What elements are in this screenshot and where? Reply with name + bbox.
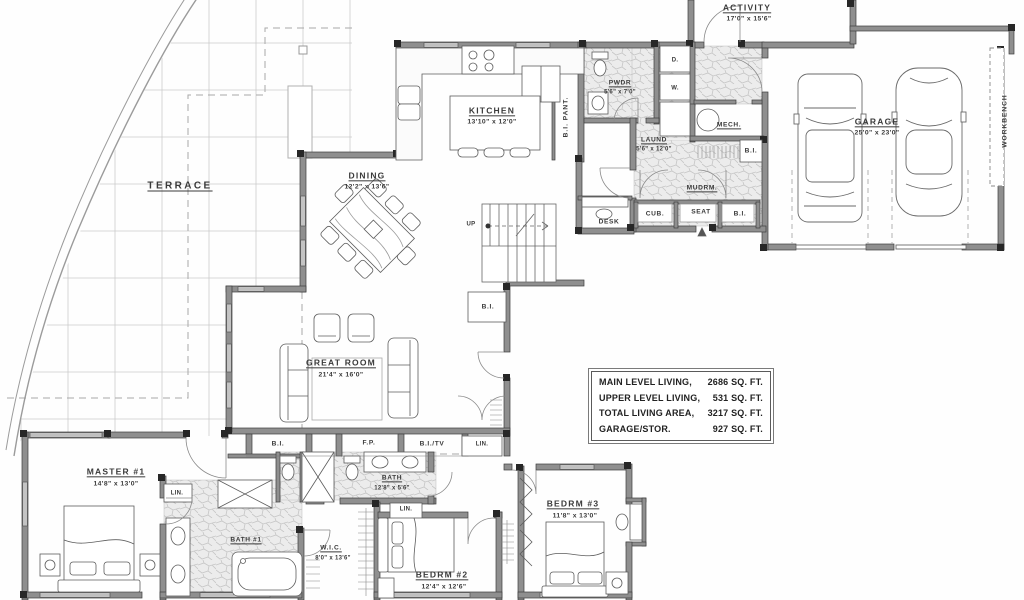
room-dims-kitchen: 13'10" x 12'0" bbox=[467, 118, 516, 125]
feature-label-builtin-seat: B.I. bbox=[734, 210, 747, 217]
stats-label: UPPER LEVEL LIVING, bbox=[599, 391, 700, 407]
room-dims-wic: 8'0" x 13'6" bbox=[315, 556, 351, 563]
stats-value: 531 SQ. FT. bbox=[713, 391, 763, 407]
stats-row-total-living: TOTAL LIVING AREA, 3217 SQ. FT. bbox=[592, 406, 770, 422]
room-dims-bedrm3: 11'8" x 13'0" bbox=[553, 512, 598, 519]
feature-label-dryer: D. bbox=[672, 58, 679, 65]
feature-label-desk: DESK bbox=[599, 218, 620, 225]
room-dims-dining: 12'2" x 13'6" bbox=[344, 183, 389, 190]
feature-label-builtin-mud: B.I. bbox=[745, 147, 758, 154]
floorplan-page: TERRACE KITCHEN 13'10" x 12'0" DINING 12… bbox=[0, 0, 1024, 600]
stats-label: GARAGE/STOR. bbox=[599, 422, 671, 438]
feature-label-fireplace: F.P. bbox=[363, 439, 376, 446]
feature-label-workbench: WORKBENCH bbox=[1003, 94, 1010, 147]
room-label-bath2: BATH bbox=[382, 474, 402, 481]
feature-label-built-in-pantry: B.I. PANT. bbox=[564, 97, 571, 138]
stats-label: MAIN LEVEL LIVING, bbox=[599, 375, 692, 391]
stats-row-garage-storage: GARAGE/STOR. 927 SQ. FT. bbox=[592, 422, 770, 438]
stats-value: 927 SQ. FT. bbox=[713, 422, 763, 438]
room-label-garage: GARAGE bbox=[855, 117, 900, 126]
stats-row-upper-level: UPPER LEVEL LIVING, 531 SQ. FT. bbox=[592, 391, 770, 407]
feature-label-builtin-greatroom: B.I. bbox=[272, 440, 285, 447]
room-dims-laundry: 5'6" x 12'0" bbox=[636, 147, 672, 154]
feature-label-cubbies: CUB. bbox=[646, 210, 665, 217]
feature-label-linen-master: LIN. bbox=[171, 491, 184, 498]
room-dims-garage: 25'0" x 23'0" bbox=[854, 129, 899, 136]
feature-label-builtin-entry: B.I. bbox=[482, 303, 495, 310]
room-label-mudroom: MUDRM. bbox=[687, 184, 718, 191]
room-label-bath1: BATH #1 bbox=[230, 536, 261, 543]
room-label-master: MASTER #1 bbox=[87, 467, 146, 476]
room-label-wic: W.I.C. bbox=[320, 544, 342, 551]
room-label-pwdr: PWDR bbox=[609, 79, 632, 86]
room-dims-bath2: 12'8" x 5'6" bbox=[374, 486, 410, 493]
room-label-dining: DINING bbox=[349, 171, 386, 180]
room-label-great-room: GREAT ROOM bbox=[306, 358, 376, 367]
area-stats-table-inner: MAIN LEVEL LIVING, 2686 SQ. FT. UPPER LE… bbox=[591, 371, 771, 441]
stats-value: 3217 SQ. FT. bbox=[708, 406, 763, 422]
room-dims-activity: 17'0" x 15'6" bbox=[726, 15, 771, 22]
room-dims-bedrm2: 12'4" x 12'6" bbox=[421, 583, 466, 590]
stats-row-main-level: MAIN LEVEL LIVING, 2686 SQ. FT. bbox=[592, 375, 770, 391]
room-label-terrace: TERRACE bbox=[147, 181, 212, 192]
room-label-kitchen: KITCHEN bbox=[469, 106, 515, 115]
area-stats-table: MAIN LEVEL LIVING, 2686 SQ. FT. UPPER LE… bbox=[588, 368, 774, 444]
room-dims-pwdr: 5'6" x 7'0" bbox=[604, 90, 636, 97]
feature-label-linen-hall: LIN. bbox=[476, 442, 489, 449]
room-label-activity: ACTIVITY bbox=[723, 3, 771, 12]
feature-label-linen-bath2: LIN. bbox=[400, 507, 413, 514]
room-label-bedrm2: BEDRM #2 bbox=[416, 570, 469, 579]
room-label-mech: MECH. bbox=[717, 121, 741, 128]
floorplan-drawing bbox=[0, 0, 1024, 600]
feature-label-washer: W. bbox=[671, 86, 679, 93]
room-dims-master: 14'8" x 13'0" bbox=[93, 480, 138, 487]
stats-value: 2686 SQ. FT. bbox=[708, 375, 763, 391]
feature-label-stairs-up: UP bbox=[467, 222, 476, 229]
feature-label-builtin-tv: B.I./TV bbox=[420, 440, 445, 447]
room-label-laundry: LAUND bbox=[641, 136, 667, 143]
stats-label: TOTAL LIVING AREA, bbox=[599, 406, 694, 422]
room-label-bedrm3: BEDRM #3 bbox=[547, 499, 600, 508]
room-dims-great-room: 21'4" x 16'0" bbox=[318, 371, 363, 378]
feature-label-seat: SEAT bbox=[691, 208, 711, 215]
